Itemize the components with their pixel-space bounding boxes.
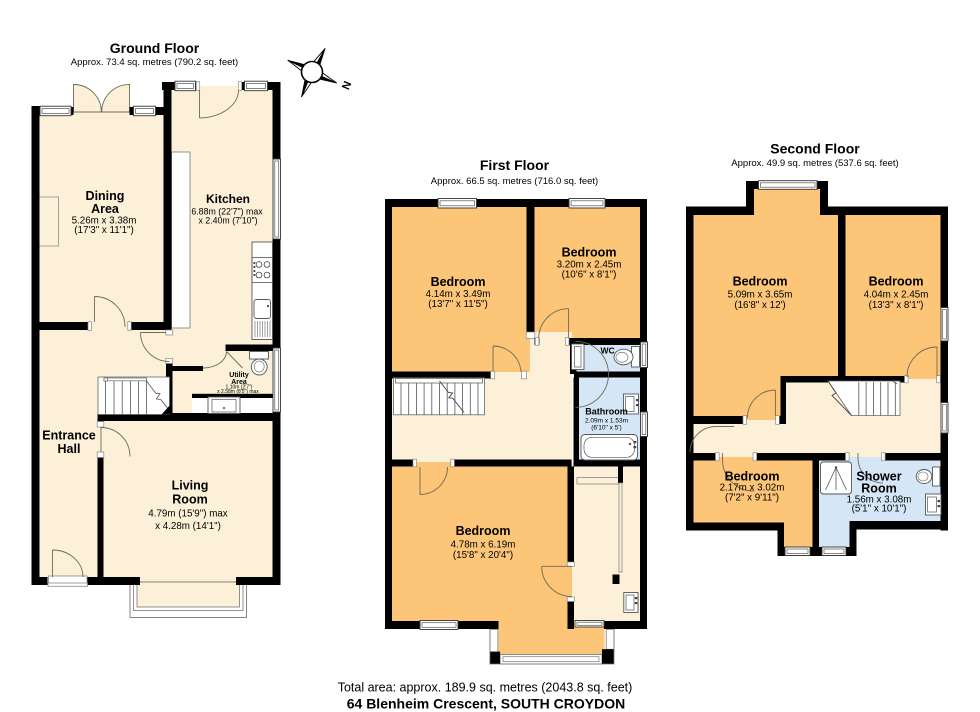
svg-text:(15'8" x 20'4"): (15'8" x 20'4") <box>453 550 513 561</box>
svg-text:Dining: Dining <box>86 189 125 203</box>
svg-text:(7'2" x 9'11"): (7'2" x 9'11") <box>725 492 779 503</box>
svg-text:Ground Floor: Ground Floor <box>110 40 200 56</box>
svg-text:5.09m x 3.65m: 5.09m x 3.65m <box>728 289 793 300</box>
svg-text:First Floor: First Floor <box>480 157 550 173</box>
svg-text:Second Floor: Second Floor <box>770 141 860 157</box>
svg-text:2.09m x 1.53m: 2.09m x 1.53m <box>585 418 628 425</box>
svg-text:Room: Room <box>172 493 207 507</box>
svg-text:Bedroom: Bedroom <box>562 246 617 260</box>
svg-text:4.04m x 2.45m: 4.04m x 2.45m <box>864 289 929 300</box>
svg-text:Bathroom: Bathroom <box>585 407 628 417</box>
svg-text:(10'6" x 8'1"): (10'6" x 8'1") <box>562 269 617 280</box>
svg-text:(16'8" x 12'): (16'8" x 12') <box>734 300 785 311</box>
svg-text:Kitchen: Kitchen <box>206 192 250 206</box>
svg-text:Total area: approx. 189.9 sq.: Total area: approx. 189.9 sq. metres (20… <box>338 681 633 695</box>
svg-text:Living: Living <box>172 479 209 493</box>
svg-text:64 Blenheim Crescent, SOUTH CR: 64 Blenheim Crescent, SOUTH CROYDON <box>347 696 626 712</box>
svg-text:x 4.28m (14'1"): x 4.28m (14'1") <box>155 521 221 532</box>
svg-text:Bedroom: Bedroom <box>431 275 486 289</box>
svg-text:WC: WC <box>601 346 615 356</box>
svg-text:Approx. 49.9 sq. metres (537.6: Approx. 49.9 sq. metres (537.6 sq. feet) <box>731 158 898 169</box>
svg-text:x 2.58m (8'5") max: x 2.58m (8'5") max <box>217 389 259 395</box>
svg-text:Bedroom: Bedroom <box>456 524 511 538</box>
svg-text:Entrance: Entrance <box>42 429 96 443</box>
svg-text:(13'7" x 11'5"): (13'7" x 11'5") <box>428 299 488 310</box>
svg-text:(5'1" x 10'1"): (5'1" x 10'1") <box>852 504 907 515</box>
svg-text:(6'10" x 5'): (6'10" x 5') <box>591 425 621 432</box>
svg-text:(17'3" x 11'1"): (17'3" x 11'1") <box>74 225 134 236</box>
svg-text:Bedroom: Bedroom <box>725 470 780 484</box>
svg-text:Approx. 66.5 sq. metres (716.0: Approx. 66.5 sq. metres (716.0 sq. feet) <box>431 176 598 187</box>
svg-text:Area: Area <box>91 202 120 216</box>
svg-text:Bedroom: Bedroom <box>733 275 788 289</box>
svg-text:Room: Room <box>861 482 896 496</box>
svg-text:Bedroom: Bedroom <box>869 275 924 289</box>
svg-text:4.79m (15'9") max: 4.79m (15'9") max <box>148 509 228 520</box>
svg-text:(13'3" x 8'1"): (13'3" x 8'1") <box>869 300 924 311</box>
svg-text:x 2.40m (7'10"): x 2.40m (7'10") <box>198 216 257 226</box>
svg-text:Hall: Hall <box>58 442 81 456</box>
svg-text:Approx. 73.4 sq. metres (790.2: Approx. 73.4 sq. metres (790.2 sq. feet) <box>71 57 238 68</box>
